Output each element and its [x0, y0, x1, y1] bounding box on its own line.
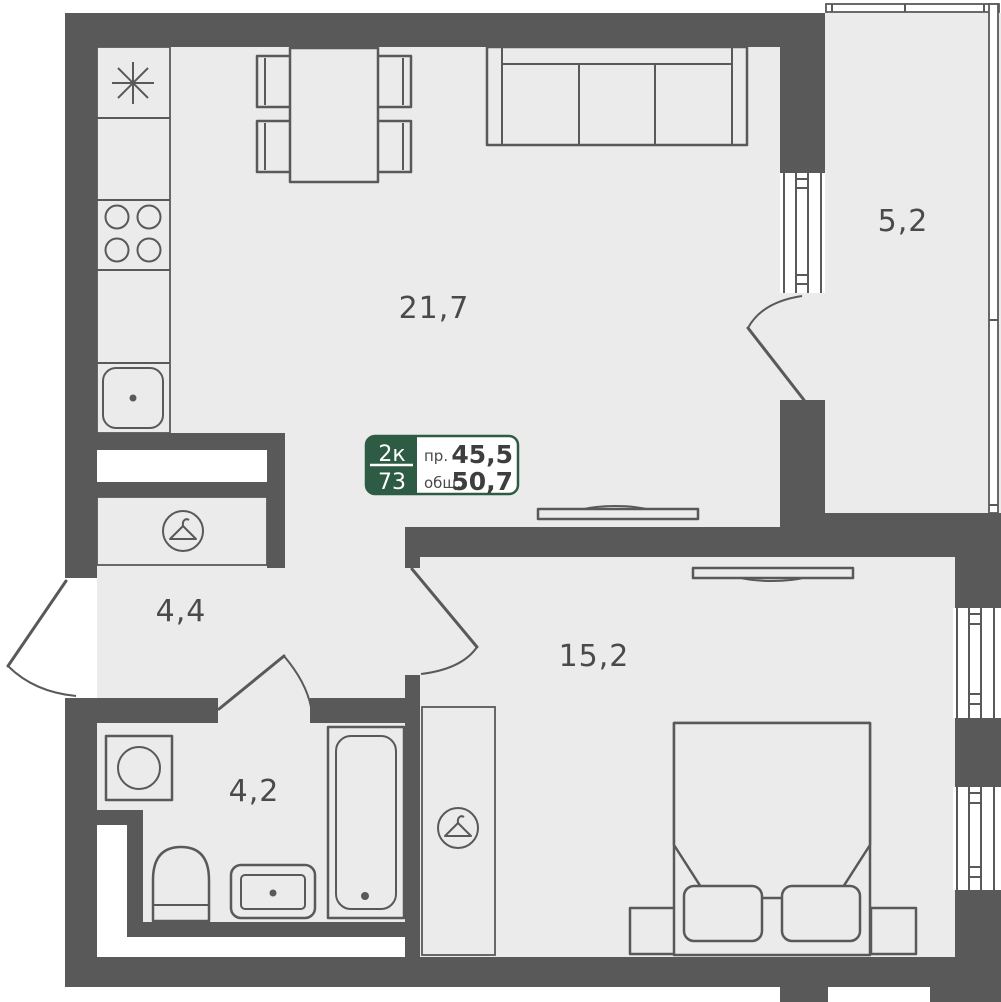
wall-left-upper [65, 13, 97, 578]
balcony-glazing-top [826, 4, 999, 12]
closet-box [97, 497, 267, 565]
dining-table [290, 48, 378, 182]
chair-seat [257, 56, 292, 107]
wall-balcony-partition-upper [780, 13, 825, 173]
wall-left-lower [65, 697, 97, 987]
wall-right-seg3 [955, 890, 1001, 987]
badge-living-area-label: пр. [424, 447, 448, 465]
gap-bathroom-south [97, 937, 405, 957]
washing-machine-body [106, 736, 172, 800]
bathtub-drain [361, 892, 369, 900]
wall-right-seg1 [955, 557, 1001, 608]
wall-bathroom-bottom [143, 922, 420, 937]
label-balcony-area: 5,2 [878, 204, 929, 239]
nightstand [871, 908, 916, 954]
wall-bottom-pillar [780, 957, 828, 1002]
badge-unit-number: 73 [378, 470, 406, 495]
dining-chair [257, 56, 292, 107]
hall-closet [97, 497, 267, 565]
wall-closet-right [267, 433, 285, 568]
floor-balcony-doorway [780, 293, 825, 400]
window-crossbar [969, 614, 981, 624]
bed-blanket [674, 723, 870, 898]
info-badge: 2к 73 пр. 45,5 общ. 50,7 [366, 436, 518, 496]
floor-plan: 21,7 5,2 4,4 15,2 4,2 2к 73 пр. 45,5 общ… [0, 0, 1001, 1002]
window-living-balcony [780, 173, 825, 293]
fridge-icon [112, 62, 154, 104]
wardrobe [422, 707, 495, 955]
tv-panel [538, 509, 698, 519]
kitchen-counter [97, 47, 170, 433]
window-crossbar [969, 694, 981, 704]
label-living-kitchen-area: 21,7 [399, 291, 470, 326]
niche-closet [97, 450, 267, 482]
dining-chair [377, 56, 411, 107]
balcony-glazing-right [989, 4, 998, 513]
floor-balcony [825, 13, 1001, 513]
dining-chair [257, 121, 292, 172]
bed-pillow [782, 886, 860, 941]
wall-closet-top-band [97, 433, 285, 450]
tv-panel [693, 568, 853, 578]
toilet-bowl [153, 847, 209, 921]
tv-icon [538, 506, 698, 519]
dining-chair [377, 121, 411, 172]
nightstand [630, 908, 675, 954]
wall-balcony-bottom [820, 513, 1001, 557]
wall-closet-mid-band [97, 482, 267, 497]
entrance-opening [65, 578, 97, 698]
wall-right-seg2 [955, 718, 1001, 787]
badge-total-area-value: 50,7 [451, 467, 513, 496]
chair-seat [377, 56, 411, 107]
window-crossbar [969, 867, 981, 877]
bathtub-outer [328, 727, 404, 918]
wall-bathroom-west-inset [127, 825, 143, 937]
wall-bathroom-west-bridge [97, 810, 143, 825]
label-bathroom-area: 4,2 [229, 774, 280, 809]
chair-seat [257, 121, 292, 172]
sofa-body [487, 47, 747, 145]
floor-bedroom-doorway [405, 568, 420, 675]
bed-pillow [684, 886, 762, 941]
chair-seat [377, 121, 411, 172]
floor-plan-svg: 21,7 5,2 4,4 15,2 4,2 2к 73 пр. 45,5 общ… [0, 0, 1001, 1002]
bathtub-icon [328, 727, 404, 918]
wall-hallway-bottom-east [310, 698, 420, 723]
window-bedroom-1 [953, 608, 1001, 718]
sink-drain [130, 395, 137, 402]
window-crossbar [796, 275, 808, 284]
bathroom-sink-icon [231, 865, 315, 918]
badge-living-area-value: 45,5 [451, 440, 513, 469]
toilet-icon [153, 847, 209, 921]
floor-bathroom-doorway [218, 698, 310, 723]
label-hallway-area: 4,4 [156, 594, 207, 629]
wall-bedroom-door-pillar [405, 527, 420, 568]
window-crossbar [969, 793, 981, 803]
wall-top [65, 13, 825, 47]
bed [674, 723, 870, 955]
tv-icon [693, 568, 853, 581]
kitchen-counter-run [97, 47, 170, 433]
sofa [487, 47, 747, 145]
washing-machine-icon [106, 736, 172, 800]
label-bedroom-area: 15,2 [559, 639, 630, 674]
sink-drain [270, 890, 277, 897]
window-bedroom-2 [953, 787, 1001, 890]
window-crossbar [796, 179, 808, 188]
wall-hallway-bottom-west [65, 698, 218, 723]
entrance-door-leaf [8, 581, 66, 666]
badge-rooms-type: 2к [378, 442, 405, 467]
